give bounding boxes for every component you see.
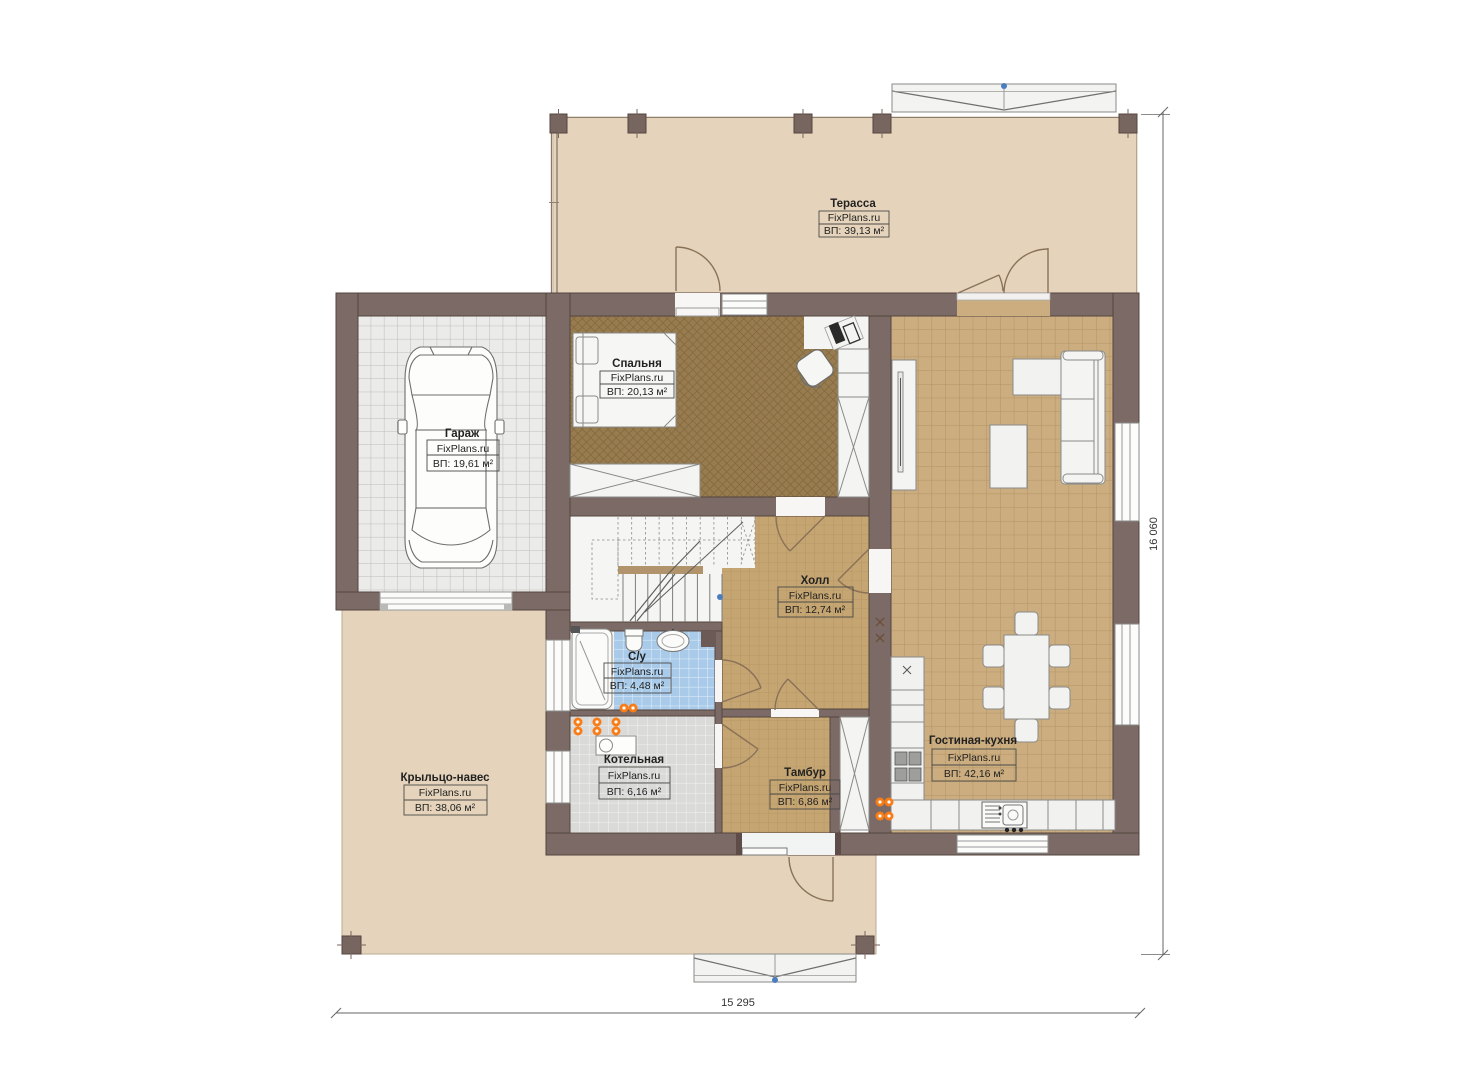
svg-text:С/у: С/у xyxy=(628,651,647,663)
svg-text:FixPlans.ru: FixPlans.ru xyxy=(611,372,664,384)
svg-text:ВП: 20,13 м²: ВП: 20,13 м² xyxy=(607,386,668,398)
svg-text:ВП: 19,61 м²: ВП: 19,61 м² xyxy=(433,458,494,470)
svg-text:ВП: 6,86 м²: ВП: 6,86 м² xyxy=(778,796,833,808)
svg-text:15 295: 15 295 xyxy=(721,997,755,1009)
svg-text:ВП: 4,48 м²: ВП: 4,48 м² xyxy=(610,680,665,692)
svg-text:FixPlans.ru: FixPlans.ru xyxy=(779,782,832,794)
svg-text:ВП: 39,13 м²: ВП: 39,13 м² xyxy=(824,225,885,237)
svg-text:FixPlans.ru: FixPlans.ru xyxy=(828,212,881,224)
svg-text:Крыльцо-навес: Крыльцо-навес xyxy=(400,772,490,784)
svg-text:FixPlans.ru: FixPlans.ru xyxy=(419,787,472,799)
svg-text:FixPlans.ru: FixPlans.ru xyxy=(948,752,1001,764)
svg-text:Терасса: Терасса xyxy=(830,198,876,210)
svg-text:ВП: 42,16 м²: ВП: 42,16 м² xyxy=(944,768,1005,780)
svg-text:16 060: 16 060 xyxy=(1148,517,1160,551)
svg-text:Гостиная-кухня: Гостиная-кухня xyxy=(929,735,1017,747)
svg-text:ВП: 38,06 м²: ВП: 38,06 м² xyxy=(415,802,476,814)
svg-text:FixPlans.ru: FixPlans.ru xyxy=(608,770,661,782)
svg-text:ВП: 12,74 м²: ВП: 12,74 м² xyxy=(785,604,846,616)
svg-text:Гараж: Гараж xyxy=(445,428,480,440)
svg-text:FixPlans.ru: FixPlans.ru xyxy=(611,666,664,678)
svg-text:Тамбур: Тамбур xyxy=(784,767,826,779)
svg-text:FixPlans.ru: FixPlans.ru xyxy=(789,590,842,602)
svg-text:Котельная: Котельная xyxy=(604,754,664,766)
svg-text:FixPlans.ru: FixPlans.ru xyxy=(437,443,490,455)
svg-text:ВП: 6,16 м²: ВП: 6,16 м² xyxy=(607,786,662,798)
svg-text:Холл: Холл xyxy=(801,575,830,587)
svg-text:Спальня: Спальня xyxy=(612,358,662,370)
